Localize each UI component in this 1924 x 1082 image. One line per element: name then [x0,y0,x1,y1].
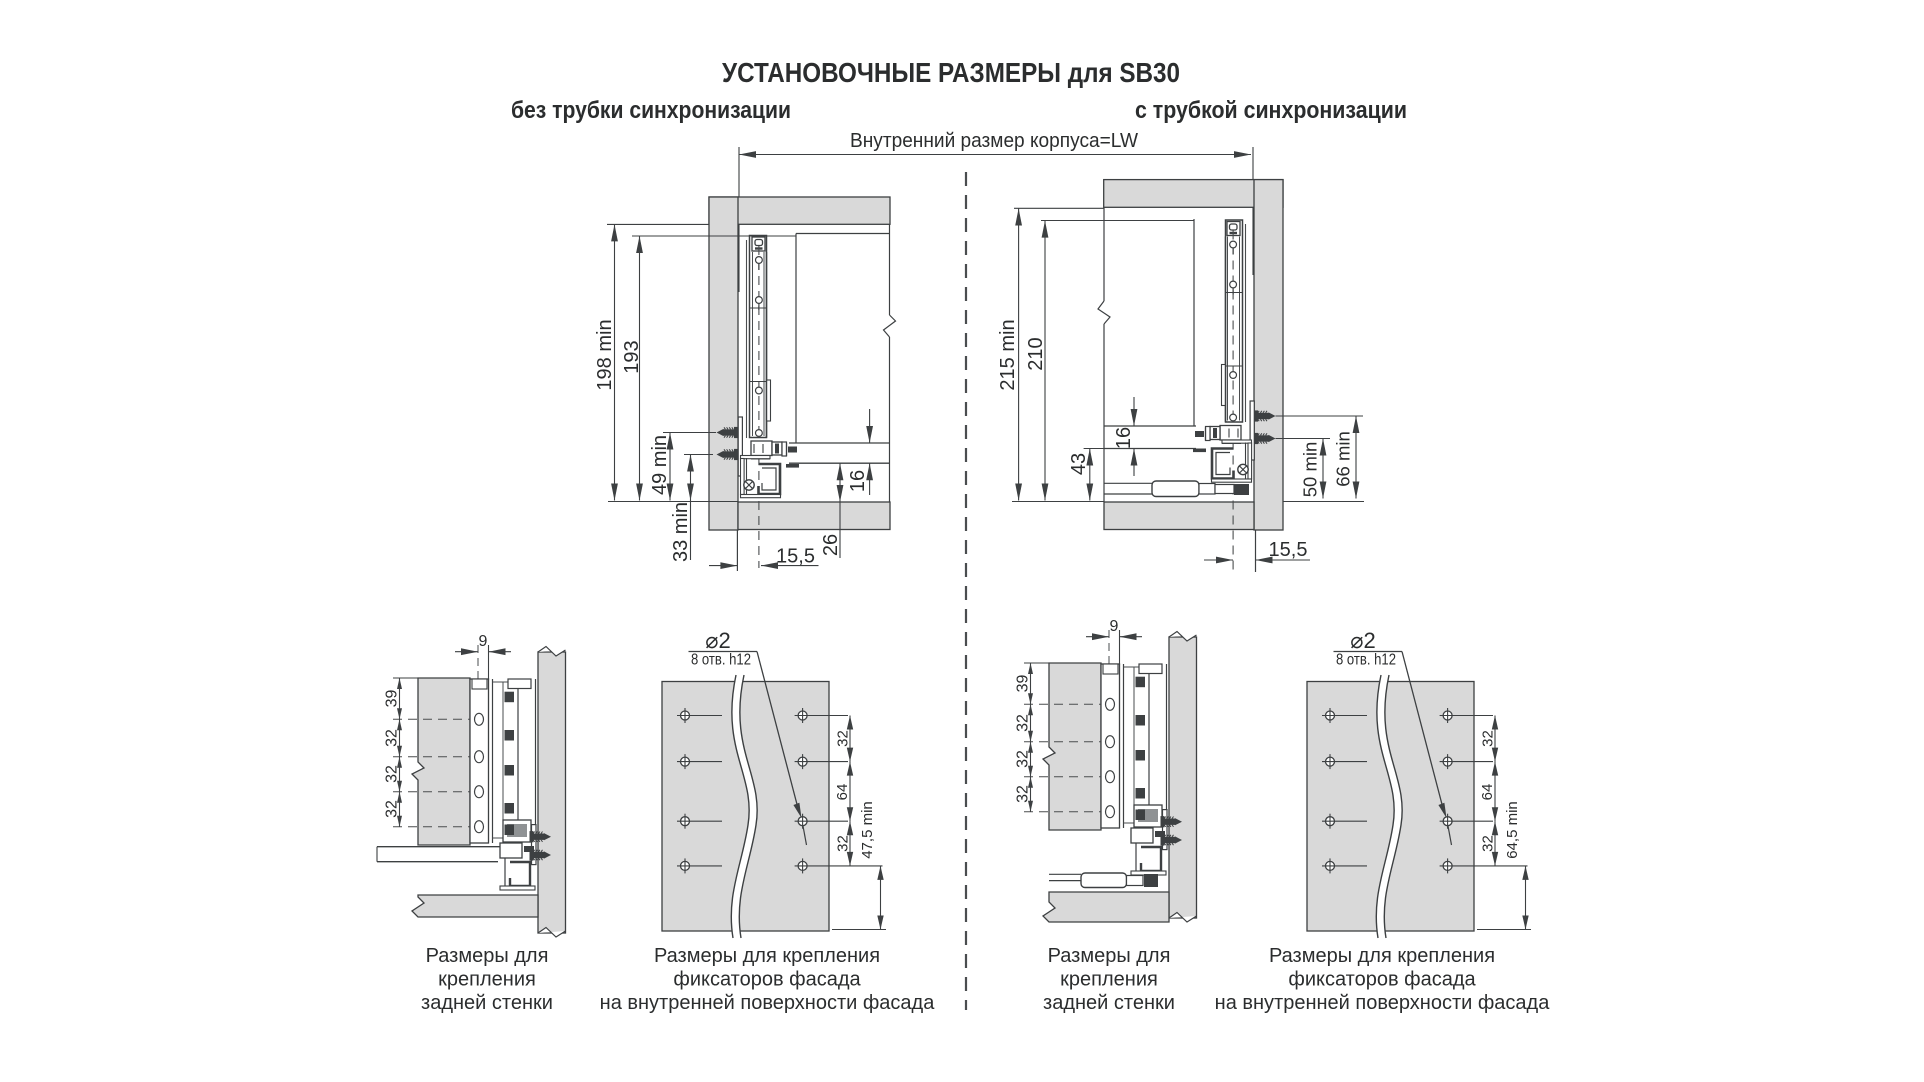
svg-text:32: 32 [384,800,401,818]
svg-text:8 отв. h12: 8 отв. h12 [691,652,751,669]
svg-text:33 min: 33 min [670,502,692,562]
svg-text:УСТАНОВОЧНЫЕ РАЗМЕРЫ для SB30: УСТАНОВОЧНЫЕ РАЗМЕРЫ для SB30 [722,57,1180,88]
svg-text:16: 16 [847,470,869,492]
svg-text:32: 32 [834,835,851,852]
svg-text:32: 32 [1015,714,1032,732]
svg-text:198 min: 198 min [594,319,616,390]
svg-text:Размеры для: Размеры для [426,945,549,967]
svg-text:Размеры для: Размеры для [1048,945,1171,967]
svg-text:43: 43 [1068,453,1090,475]
svg-text:49 min: 49 min [649,435,671,495]
svg-text:32: 32 [384,729,401,747]
svg-text:Размеры для крепления: Размеры для крепления [654,945,880,967]
svg-text:фиксаторов фасада: фиксаторов фасада [673,969,861,991]
svg-text:47,5 min: 47,5 min [859,801,876,859]
svg-text:215 min: 215 min [997,319,1019,390]
svg-text:8 отв. h12: 8 отв. h12 [1336,652,1396,669]
svg-text:32: 32 [1479,835,1496,852]
svg-text:210: 210 [1025,337,1047,370]
svg-text:39: 39 [1015,675,1032,693]
svg-text:фиксаторов фасада: фиксаторов фасада [1288,969,1476,991]
svg-text:39: 39 [384,690,401,708]
svg-text:32: 32 [1015,785,1032,803]
svg-text:64,5 min: 64,5 min [1504,801,1521,859]
svg-text:задней стенки: задней стенки [1043,992,1175,1014]
svg-text:9: 9 [1110,618,1119,635]
svg-text:32: 32 [384,765,401,783]
svg-text:крепления: крепления [438,969,536,991]
svg-text:крепления: крепления [1060,969,1158,991]
svg-text:193: 193 [621,340,643,373]
svg-text:с трубкой синхронизации: с трубкой синхронизации [1135,97,1407,124]
svg-text:32: 32 [1015,750,1032,768]
svg-text:16: 16 [1113,427,1135,449]
svg-text:15,5: 15,5 [1269,539,1308,561]
svg-text:без трубки синхронизации: без трубки синхронизации [511,97,791,124]
svg-text:32: 32 [1479,730,1496,747]
svg-text:на внутренней поверхности фаса: на внутренней поверхности фасада [600,992,936,1014]
svg-text:⌀2: ⌀2 [705,628,730,653]
svg-text:26: 26 [820,534,842,556]
svg-text:Размеры для крепления: Размеры для крепления [1269,945,1495,967]
svg-text:64: 64 [834,784,851,801]
svg-text:Внутренний размер корпуса=LW: Внутренний размер корпуса=LW [850,130,1138,152]
svg-text:9: 9 [479,633,488,650]
svg-text:32: 32 [834,730,851,747]
svg-text:64: 64 [1479,784,1496,801]
svg-text:⌀2: ⌀2 [1350,628,1375,653]
svg-text:66 min: 66 min [1333,431,1354,487]
svg-text:15,5: 15,5 [776,546,815,568]
svg-text:на внутренней поверхности фаса: на внутренней поверхности фасада [1215,992,1551,1014]
svg-text:задней стенки: задней стенки [421,992,553,1014]
svg-text:50 min: 50 min [1300,442,1321,498]
